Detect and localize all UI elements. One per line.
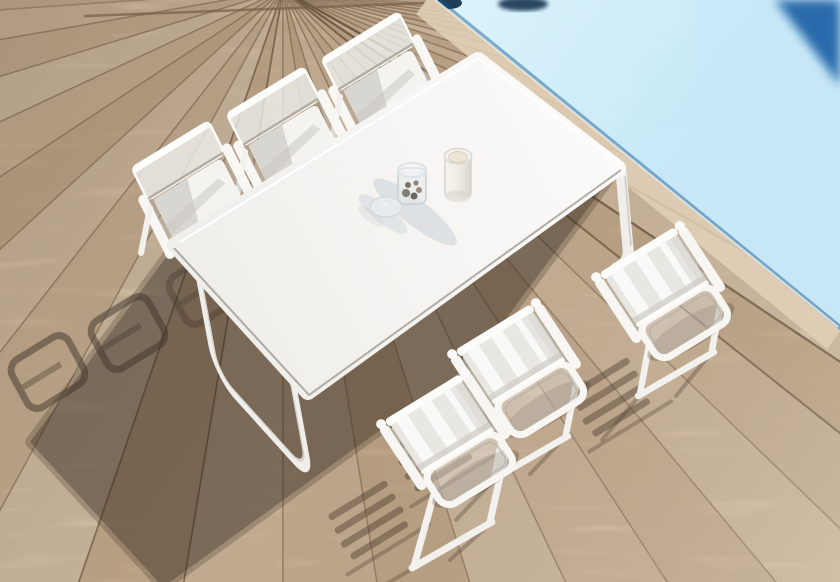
pebble-jar <box>398 163 426 204</box>
dish-rim <box>370 197 402 217</box>
jar-pebble <box>405 182 411 188</box>
candle-glass-base <box>445 190 471 202</box>
candle-hurricane <box>445 149 472 203</box>
jar-pebble <box>413 180 418 185</box>
candle-wax-top <box>449 152 468 163</box>
jar-pebble <box>411 193 418 200</box>
jar-rim <box>398 163 426 177</box>
poolside-photo <box>0 0 840 582</box>
photo-canvas <box>0 0 840 582</box>
jar-pebble <box>416 187 422 193</box>
jar-pebble <box>402 189 410 197</box>
glass-dish <box>370 197 402 217</box>
